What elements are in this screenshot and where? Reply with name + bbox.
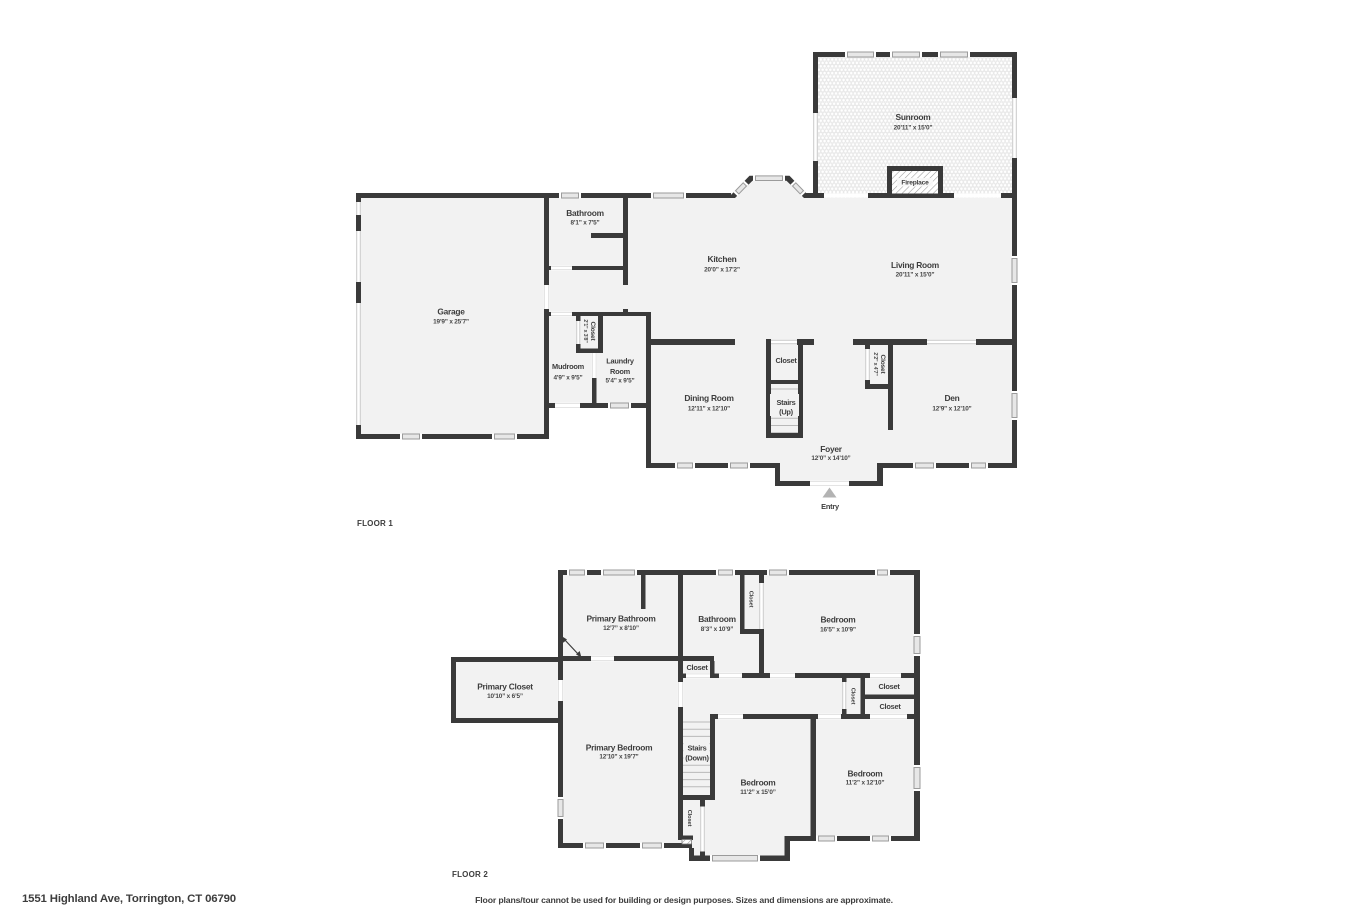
svg-text:2’2” x 4’7”: 2’2” x 4’7” <box>872 352 878 376</box>
svg-text:Foyer: Foyer <box>820 444 843 454</box>
svg-text:10’10” x 6’5”: 10’10” x 6’5” <box>487 693 523 700</box>
svg-text:Room: Room <box>610 367 631 376</box>
svg-text:11’2” x 15’0”: 11’2” x 15’0” <box>740 789 775 796</box>
svg-text:Closet: Closet <box>878 682 900 691</box>
svg-text:Closet: Closet <box>748 591 754 608</box>
svg-text:FLOOR 1: FLOOR 1 <box>357 519 393 528</box>
svg-text:16’5” x 10’9”: 16’5” x 10’9” <box>820 627 856 634</box>
svg-text:4’9” x 9’5”: 4’9” x 9’5” <box>553 375 582 382</box>
svg-text:12’11” x 12’10”: 12’11” x 12’10” <box>688 406 730 413</box>
svg-text:20’0” x 17’2”: 20’0” x 17’2” <box>704 267 740 274</box>
svg-text:Closet: Closet <box>589 322 596 342</box>
svg-text:20’11” x 15’0”: 20’11” x 15’0” <box>894 125 933 132</box>
svg-text:Bedroom: Bedroom <box>820 615 855 625</box>
svg-text:Primary Closet: Primary Closet <box>477 682 533 692</box>
svg-text:Bedroom: Bedroom <box>740 778 775 788</box>
svg-text:Closet: Closet <box>850 688 856 705</box>
svg-text:Living Room: Living Room <box>891 260 939 270</box>
svg-text:Closet: Closet <box>686 663 708 672</box>
svg-text:Sunroom: Sunroom <box>895 112 930 122</box>
svg-text:5’4” x 9’5”: 5’4” x 9’5” <box>605 378 634 385</box>
svg-text:19’9” x 25’7”: 19’9” x 25’7” <box>433 319 469 326</box>
svg-text:12’0” x 14’10”: 12’0” x 14’10” <box>811 455 850 462</box>
svg-text:8’1” x 7’5”: 8’1” x 7’5” <box>570 220 599 227</box>
svg-text:Primary Bedroom: Primary Bedroom <box>586 743 653 753</box>
svg-text:Stairs: Stairs <box>776 398 795 407</box>
svg-text:Bathroom: Bathroom <box>698 614 736 624</box>
svg-text:Floor plans/tour cannot be use: Floor plans/tour cannot be used for buil… <box>475 895 893 905</box>
svg-text:Bathroom: Bathroom <box>566 208 604 218</box>
svg-text:Entry: Entry <box>821 502 840 511</box>
svg-text:Primary Bathroom: Primary Bathroom <box>586 614 655 624</box>
svg-text:8’3” x 10’9”: 8’3” x 10’9” <box>701 626 733 633</box>
svg-text:Closet: Closet <box>775 356 797 365</box>
svg-text:2’1” x 3’8”: 2’1” x 3’8” <box>582 319 588 343</box>
svg-text:1551 Highland Ave, Torrington,: 1551 Highland Ave, Torrington, CT 06790 <box>22 893 236 905</box>
svg-text:11’2” x 12’10”: 11’2” x 12’10” <box>846 780 885 787</box>
svg-text:12’9” x 12’10”: 12’9” x 12’10” <box>932 406 971 413</box>
svg-text:Kitchen: Kitchen <box>708 254 737 264</box>
svg-text:20’11” x 15’0”: 20’11” x 15’0” <box>896 272 935 279</box>
svg-text:Laundry: Laundry <box>606 357 635 366</box>
svg-text:Garage: Garage <box>437 307 465 317</box>
svg-text:(Down): (Down) <box>685 754 709 763</box>
svg-text:Stairs: Stairs <box>687 744 706 753</box>
svg-text:12’7” x 8’10”: 12’7” x 8’10” <box>603 625 639 632</box>
svg-text:Fireplace: Fireplace <box>901 180 929 187</box>
svg-text:Closet: Closet <box>879 355 886 375</box>
svg-text:Den: Den <box>944 393 959 403</box>
svg-text:Closet: Closet <box>686 810 692 827</box>
svg-text:FLOOR 2: FLOOR 2 <box>452 870 488 879</box>
svg-text:12’10” x 19’7”: 12’10” x 19’7” <box>599 754 638 761</box>
svg-text:Mudroom: Mudroom <box>552 362 585 371</box>
svg-text:Dining Room: Dining Room <box>684 393 733 403</box>
svg-text:Closet: Closet <box>879 702 901 711</box>
svg-text:Bedroom: Bedroom <box>847 769 882 779</box>
svg-text:(Up): (Up) <box>779 408 794 417</box>
